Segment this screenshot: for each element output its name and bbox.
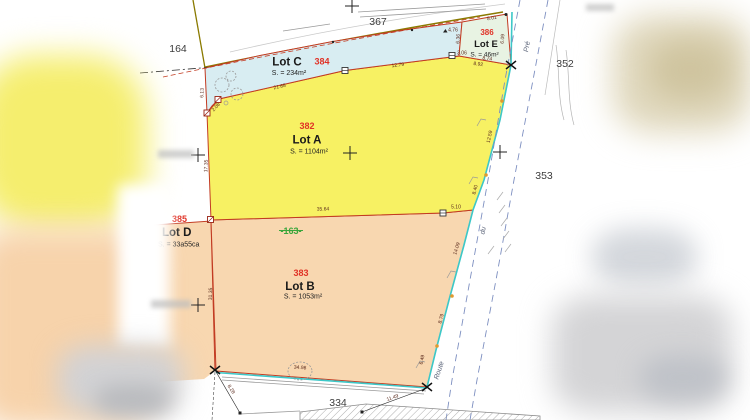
lot-e-number: 386	[480, 28, 494, 37]
road-label-pre: Pré	[523, 41, 532, 53]
dim-11-49: 11.49	[386, 393, 400, 403]
boundary-dot-2	[411, 29, 413, 31]
cadastral-plan: 382 Lot A S. = 1104m² 383 Lot B S. = 105…	[0, 0, 750, 420]
road-edge-olive-stub	[193, 0, 205, 68]
dim-3-06: 3.06	[457, 51, 467, 57]
dim-8-79: 8.79	[437, 313, 445, 324]
neighbor-334: 334	[329, 397, 347, 409]
lot-d-number: 385	[172, 214, 187, 224]
dim-4-76: 4.76	[448, 28, 458, 34]
dim-6-13: 6.13	[199, 88, 206, 98]
lot-c-surface: S. = 234m²	[272, 70, 307, 77]
boundary-dot-3	[505, 13, 508, 16]
terrace-edge	[240, 411, 300, 414]
top-wall-line-3	[283, 24, 330, 31]
dim-5-10: 5.10	[451, 205, 461, 211]
road-label-du: du	[479, 226, 487, 235]
grid-cross-top	[345, 0, 359, 13]
neighbor-367: 367	[369, 16, 387, 28]
slope-squiggles	[556, 45, 574, 125]
lot-b-number: 383	[293, 268, 308, 278]
top-wall-line-1	[358, 4, 485, 12]
old-parcel-number: -163-	[280, 226, 301, 236]
neighbor-352: 352	[556, 58, 574, 70]
dim-6-36: 6.36	[455, 34, 462, 44]
dim-34-98: 34.98	[294, 365, 307, 372]
boundary-dot-1	[332, 41, 334, 43]
dim-35-64: 35.64	[317, 206, 330, 212]
lot-d-name: Lot D	[162, 227, 191, 239]
dim-17-35: 17.35	[203, 159, 209, 172]
road-right-edge	[545, 0, 560, 95]
grid-cross-right	[493, 145, 507, 159]
dim-31-35: 31.35	[208, 287, 214, 300]
neighbor-164: 164	[169, 43, 187, 55]
lot-a-number: 382	[299, 121, 314, 131]
lot-a-surface: S. = 1104m²	[290, 149, 328, 156]
lot-a-name: Lot A	[293, 135, 322, 147]
plan-svg: 382 Lot A S. = 1104m² 383 Lot B S. = 105…	[0, 0, 750, 420]
road-label-route: Route	[433, 360, 445, 380]
tie-point-right	[361, 411, 364, 414]
boundary-continuation-dashed	[212, 372, 215, 420]
lot-b-surface: S. = 1053m²	[284, 294, 323, 301]
tie-point-left	[239, 412, 242, 415]
lot-c-name: Lot C	[272, 57, 301, 69]
dim-6-09: 6.09	[500, 34, 507, 44]
lot-e-name: Lot E	[474, 39, 498, 50]
lot-c-number: 384	[314, 57, 329, 67]
road-hatch-ticks	[488, 192, 511, 254]
old-parcel-label: -163-	[279, 226, 303, 236]
neighbor-353: 353	[535, 170, 553, 182]
lot-d-surface: S. = 33a55ca	[158, 242, 200, 249]
dim-8-28: 8.28	[226, 384, 236, 396]
lot-b-name: Lot B	[285, 281, 314, 293]
